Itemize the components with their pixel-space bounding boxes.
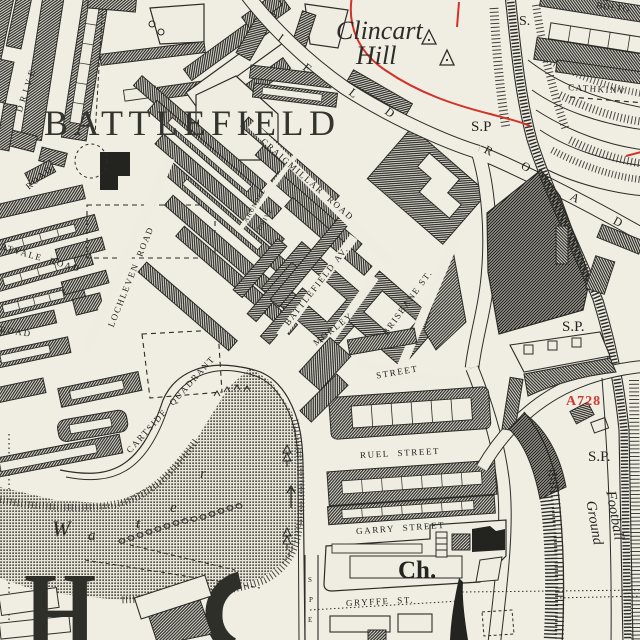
svg-text:a: a <box>88 528 96 544</box>
svg-text:A728: A728 <box>566 394 601 409</box>
svg-text:S.P: S.P <box>471 119 491 135</box>
svg-text:BATTLEFIELD: BATTLEFIELD <box>44 103 340 143</box>
svg-text:Ch.: Ch. <box>398 557 436 584</box>
svg-text:r: r <box>200 466 206 482</box>
svg-text:e: e <box>170 500 177 516</box>
svg-text:Hill: Hill <box>355 41 396 70</box>
svg-text:H: H <box>24 549 96 640</box>
svg-text:S: S <box>308 576 312 584</box>
svg-text:S.: S. <box>519 14 530 29</box>
svg-text:E: E <box>308 616 312 624</box>
svg-text:W: W <box>52 516 72 541</box>
svg-text:P: P <box>309 596 313 604</box>
svg-text:S.P.: S.P. <box>588 449 611 465</box>
svg-text:S.P.: S.P. <box>562 319 585 335</box>
